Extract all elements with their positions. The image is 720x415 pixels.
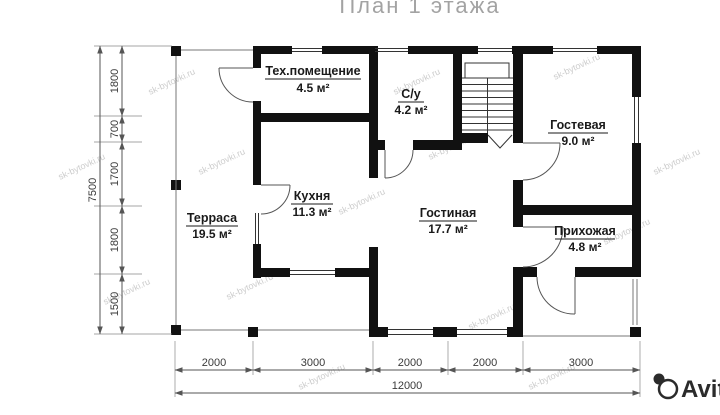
door-tech-room [219,68,253,102]
dim-bottom-seg-3: 2000 [398,357,422,369]
room-name: Прихожая [554,224,616,238]
watermark-text: sk-bytovki.ru [337,186,387,216]
room-label-terrace: Терраса 19.5 м² [186,211,238,241]
room-label-hallway: Прихожая 4.8 м² [554,224,616,254]
floor-plan-drawing: План 1 этажа sk-bytovki.ru sk-bytovki.ru… [0,0,720,415]
dim-left-seg-4: 1800 [109,228,121,252]
room-label-living: Гостиная 17.7 м² [419,206,477,236]
watermark-layer: sk-bytovki.ru sk-bytovki.ru sk-bytovki.r… [57,51,702,391]
avito-logo-ring [659,380,677,398]
door-entry [537,277,575,314]
room-label-kitchen: Кухня 11.3 м² [291,189,333,219]
dim-left-total: 7500 [87,178,99,202]
door-guest-room [523,143,560,180]
watermark-text: sk-bytovki.ru [552,51,602,81]
dim-left-seg-1: 1800 [109,69,121,93]
watermark-text: sk-bytovki.ru [652,146,702,176]
terrace-boundary [176,50,369,330]
room-area: 19.5 м² [192,227,232,241]
dim-left-seg-5: 1500 [109,292,121,316]
avito-logo-text: Avito [681,376,720,403]
room-area: 4.8 м² [569,240,602,254]
room-area: 17.7 м² [428,222,468,236]
door-kitchen [261,185,290,214]
room-name: Гостевая [550,118,606,132]
room-area: 11.3 м² [293,205,332,219]
room-name: Кухня [294,189,331,203]
room-area: 4.5 м² [297,81,330,95]
watermark-text: sk-bytovki.ru [57,151,107,181]
floor-plan-page: План 1 этажа sk-bytovki.ru sk-bytovki.ru… [0,0,720,415]
porch-boundary [523,279,637,336]
room-area: 9.0 м² [562,134,595,148]
watermark-text: sk-bytovki.ru [197,146,247,176]
room-name: Терраса [187,211,238,225]
room-name: Гостиная [420,206,477,220]
dim-bottom-seg-2: 3000 [301,357,325,369]
room-label-tech: Тех.помещение 4.5 м² [265,64,361,95]
page-title: План 1 этажа [339,0,500,18]
watermark-text: sk-bytovki.ru [147,66,197,96]
dim-bottom-seg-1: 2000 [202,357,226,369]
dim-left-seg-3: 1700 [109,162,121,186]
dim-bottom-seg-4: 2000 [473,357,497,369]
dim-bottom-total: 12000 [392,380,423,392]
room-name: Тех.помещение [265,64,360,78]
avito-logo: Avito [654,374,720,404]
room-name: С/у [401,87,421,101]
room-area: 4.2 м² [395,103,428,117]
dim-left-seg-2: 700 [109,120,121,138]
door-bathroom [385,150,413,178]
stair-direction-arrow [488,135,512,148]
dim-bottom-seg-5: 3000 [569,357,593,369]
